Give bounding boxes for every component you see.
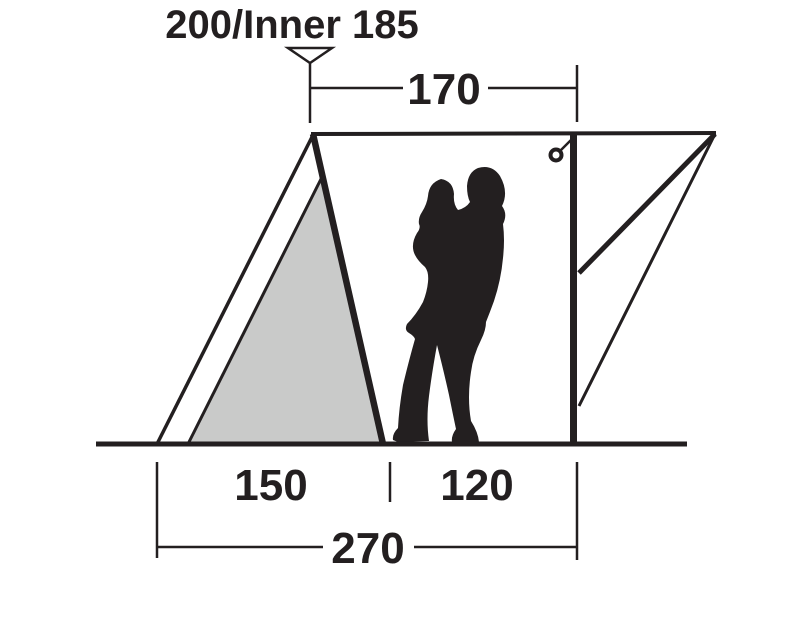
tent-dimension-diagram: 200/Inner 185 170 150 120 270 bbox=[0, 0, 800, 623]
guy-ring-icon bbox=[551, 150, 562, 161]
inner-base-label: 150 bbox=[234, 461, 307, 510]
diagram-linework bbox=[96, 48, 716, 560]
rear-strut-thick-line bbox=[579, 134, 715, 273]
peak-height-label: 200/Inner 185 bbox=[165, 3, 419, 47]
ridge-line bbox=[311, 133, 716, 134]
porch-base-label: 120 bbox=[440, 461, 513, 510]
down-arrow-icon bbox=[288, 48, 332, 63]
diagram-drawing: 200/Inner 185 170 150 120 270 bbox=[0, 0, 800, 623]
total-base-label: 270 bbox=[331, 524, 404, 573]
person-silhouette bbox=[393, 167, 505, 442]
rear-strut-thin-line bbox=[579, 134, 715, 406]
top-width-label: 170 bbox=[407, 65, 480, 114]
